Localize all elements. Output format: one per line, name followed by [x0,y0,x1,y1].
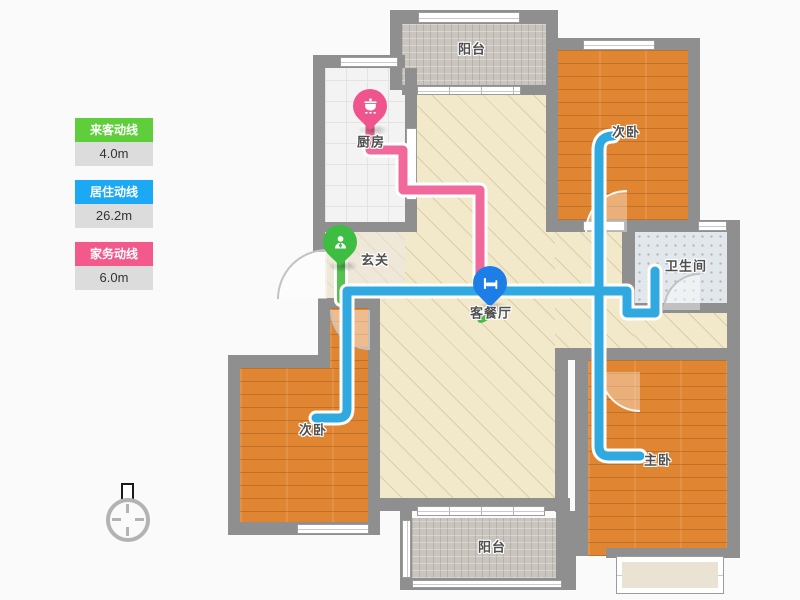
bedroom-left-label: 次卧 [299,420,327,439]
living-pin[interactable] [466,259,514,307]
balcony-bottom-label: 阳台 [478,537,506,556]
floorplan-app: { "legend": { "items": [ {"label": "来客动线… [0,0,800,600]
kitchen-label: 厨房 [357,132,385,151]
bedroom-master-label: 主卧 [644,450,672,469]
kitchen-pin[interactable] [346,82,394,130]
entry-pin[interactable] [316,218,364,266]
living-dining-label: 客餐厅 [470,303,512,322]
bed-icon [473,266,507,300]
person-icon [323,225,357,259]
movement-lines-overlay [0,0,800,600]
entry-label: 玄关 [361,250,389,269]
balcony-top-label: 阳台 [458,39,486,58]
bedroom-top-right-label: 次卧 [612,122,640,141]
bathroom-label: 卫生间 [665,256,707,275]
pot-icon [353,89,387,123]
